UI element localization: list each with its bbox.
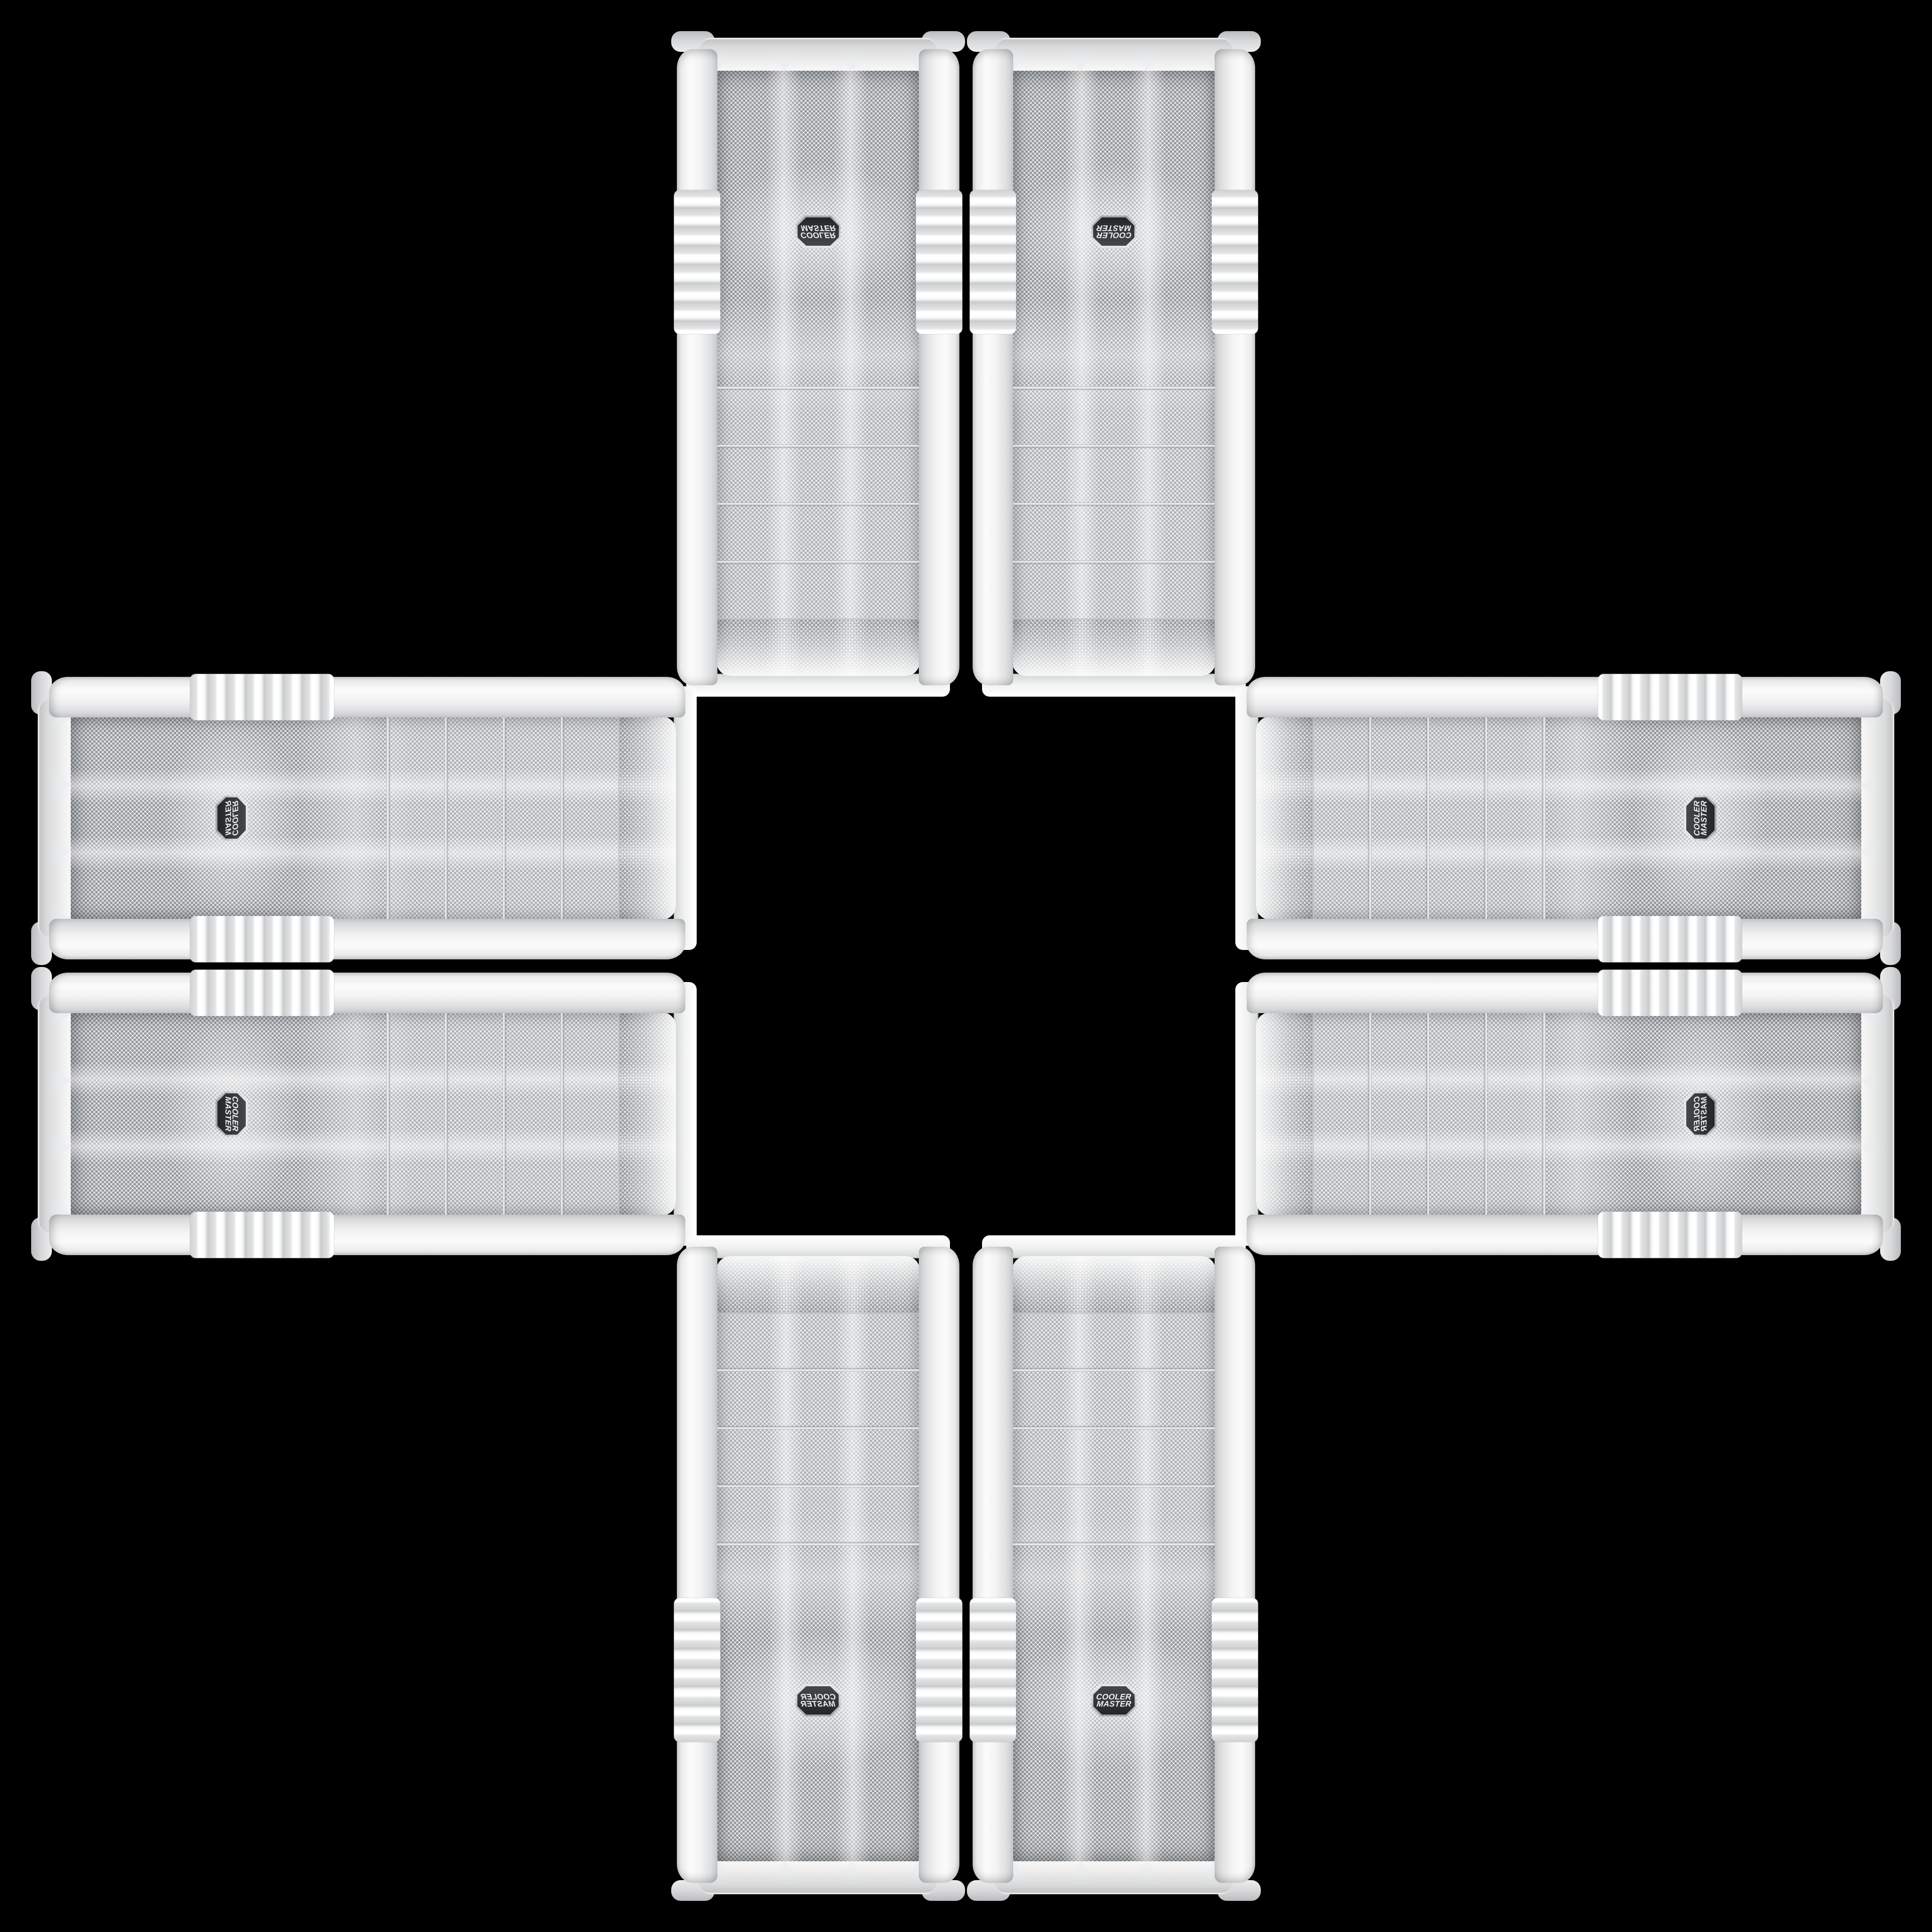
drive-bay bbox=[716, 1488, 920, 1546]
drive-bay bbox=[1430, 716, 1488, 920]
drive-bay bbox=[1012, 1430, 1216, 1488]
drive-bay bbox=[1012, 560, 1216, 618]
top-lip bbox=[982, 674, 1246, 697]
drive-bay bbox=[502, 1012, 560, 1216]
drive-bay-covers bbox=[716, 1314, 920, 1546]
badge-line1: COOLER bbox=[800, 232, 836, 239]
cooler-master-badge: COOLER MASTER bbox=[796, 216, 841, 248]
top-lip bbox=[686, 674, 950, 697]
mesh-crown bbox=[1012, 1256, 1216, 1314]
drive-bay bbox=[1012, 1372, 1216, 1430]
front-mesh-panel: COOLER MASTER bbox=[1256, 716, 1861, 920]
bezel-rail-right bbox=[919, 49, 959, 685]
top-lip bbox=[674, 982, 697, 1246]
rail-grip-ribs bbox=[191, 970, 334, 1016]
front-mesh-panel: COOLER MASTER bbox=[71, 716, 676, 920]
badge-line2: MASTER bbox=[1096, 1700, 1132, 1707]
drive-bay-covers bbox=[1012, 386, 1216, 618]
rail-grip-ribs bbox=[1598, 674, 1742, 720]
mesh-crown bbox=[618, 1012, 676, 1216]
badge-face: COOLER MASTER bbox=[1093, 217, 1135, 246]
bottom-cap bbox=[700, 1857, 937, 1894]
drive-bay-covers bbox=[1314, 1012, 1546, 1216]
rail-grip-ribs bbox=[674, 1598, 720, 1742]
bezel-rail-right bbox=[1247, 1215, 1883, 1255]
badge-face: COOLER MASTER bbox=[1093, 1686, 1135, 1715]
top-lip bbox=[1235, 982, 1258, 1246]
drive-bay bbox=[1314, 716, 1372, 920]
top-lip bbox=[686, 1235, 950, 1258]
cooler-master-badge: COOLER MASTER bbox=[1684, 1091, 1716, 1137]
bottom-cap bbox=[995, 38, 1232, 75]
pc-case-east-bottom: COOLER MASTER bbox=[1230, 971, 1895, 1257]
drive-bay bbox=[1012, 444, 1216, 502]
drive-bay bbox=[716, 560, 920, 618]
drive-bay bbox=[1372, 1012, 1430, 1216]
drive-bay bbox=[502, 716, 560, 920]
badge-face: COOLER MASTER bbox=[798, 217, 839, 246]
drive-bay bbox=[716, 1430, 920, 1488]
bezel-rail-left bbox=[49, 919, 685, 959]
drive-bay bbox=[444, 1012, 502, 1216]
bezel-rail-right bbox=[49, 1215, 685, 1255]
rail-grip-ribs bbox=[970, 1598, 1016, 1742]
cooler-master-badge: COOLER MASTER bbox=[216, 1091, 248, 1137]
pc-case-south-left: COOLER MASTER bbox=[675, 1230, 961, 1895]
cooler-master-badge: COOLER MASTER bbox=[1684, 796, 1716, 841]
bezel-rail-left bbox=[919, 1247, 959, 1883]
drive-bay bbox=[560, 1012, 618, 1216]
top-lip bbox=[674, 686, 697, 950]
badge-line2: MASTER bbox=[1700, 1096, 1707, 1132]
drive-bay bbox=[1430, 1012, 1488, 1216]
cooler-master-badge: COOLER MASTER bbox=[1091, 216, 1137, 248]
rail-grip-ribs bbox=[916, 191, 962, 334]
badge-line2: MASTER bbox=[1096, 225, 1132, 232]
badge-face: COOLER MASTER bbox=[217, 798, 246, 839]
rail-grip-ribs bbox=[916, 1598, 962, 1742]
drive-bay bbox=[716, 444, 920, 502]
bezel-rail-right bbox=[1247, 677, 1883, 717]
cooler-master-badge: COOLER MASTER bbox=[216, 796, 248, 841]
badge-face: COOLER MASTER bbox=[1686, 1093, 1715, 1135]
bottom-cap bbox=[995, 1857, 1232, 1894]
drive-bay-covers bbox=[716, 386, 920, 618]
drive-bay bbox=[716, 1314, 920, 1372]
front-mesh-panel: COOLER MASTER bbox=[1012, 1256, 1216, 1861]
drive-bay bbox=[386, 1012, 444, 1216]
mesh-crown bbox=[716, 618, 920, 676]
rail-grip-ribs bbox=[1598, 916, 1742, 962]
drive-bay bbox=[560, 716, 618, 920]
badge-line2: MASTER bbox=[225, 1096, 232, 1132]
drive-bay bbox=[386, 716, 444, 920]
bezel-rail-left bbox=[973, 1247, 1013, 1883]
mesh-crown bbox=[1256, 1012, 1314, 1216]
drive-bay bbox=[716, 1372, 920, 1430]
bottom-cap bbox=[38, 700, 75, 937]
rail-grip-ribs bbox=[191, 916, 334, 962]
rail-grip-ribs bbox=[1212, 1598, 1258, 1742]
pc-case-north-right: COOLER MASTER bbox=[971, 37, 1257, 702]
drive-bay-covers bbox=[1012, 1314, 1216, 1546]
collage-canvas: COOLER MASTER bbox=[0, 0, 1932, 1932]
bottom-cap bbox=[1857, 995, 1894, 1232]
bezel-rail-left bbox=[1247, 973, 1883, 1013]
bezel-rail-left bbox=[1215, 49, 1255, 685]
badge-face: COOLER MASTER bbox=[798, 1686, 839, 1715]
drive-bay bbox=[1488, 716, 1546, 920]
drive-bay bbox=[1314, 1012, 1372, 1216]
mesh-crown bbox=[1012, 618, 1216, 676]
bezel-rail-left bbox=[1247, 919, 1883, 959]
cooler-master-badge: COOLER MASTER bbox=[796, 1684, 841, 1716]
pc-case-north-left: COOLER MASTER bbox=[675, 37, 961, 702]
bezel-rail-right bbox=[49, 677, 685, 717]
front-mesh-panel: COOLER MASTER bbox=[716, 71, 920, 676]
rail-grip-ribs bbox=[191, 674, 334, 720]
bezel-rail-left bbox=[677, 49, 717, 685]
badge-line2: MASTER bbox=[1700, 800, 1707, 836]
badge-line1: COOLER bbox=[232, 1096, 239, 1132]
pc-case-west-bottom: COOLER MASTER bbox=[37, 971, 702, 1257]
rail-grip-ribs bbox=[1212, 191, 1258, 334]
pc-case-east-top: COOLER MASTER bbox=[1230, 675, 1895, 961]
rail-grip-ribs bbox=[674, 191, 720, 334]
drive-bay-covers bbox=[386, 716, 618, 920]
rail-grip-ribs bbox=[1598, 1212, 1742, 1258]
badge-line2: MASTER bbox=[800, 225, 836, 232]
mesh-crown bbox=[618, 716, 676, 920]
top-lip bbox=[982, 1235, 1246, 1258]
badge-face: COOLER MASTER bbox=[217, 1093, 246, 1135]
badge-face: COOLER MASTER bbox=[1686, 798, 1715, 839]
bottom-cap bbox=[38, 995, 75, 1232]
drive-bay bbox=[716, 502, 920, 560]
badge-line1: COOLER bbox=[1096, 232, 1132, 239]
rail-grip-ribs bbox=[191, 1212, 334, 1258]
rail-grip-ribs bbox=[970, 191, 1016, 334]
drive-bay bbox=[1012, 1314, 1216, 1372]
bezel-rail-right bbox=[677, 1247, 717, 1883]
front-mesh-panel: COOLER MASTER bbox=[1256, 1012, 1861, 1216]
drive-bay bbox=[716, 386, 920, 444]
front-mesh-panel: COOLER MASTER bbox=[716, 1256, 920, 1861]
drive-bay bbox=[444, 716, 502, 920]
drive-bay bbox=[1012, 386, 1216, 444]
bezel-rail-right bbox=[1215, 1247, 1255, 1883]
drive-bay-covers bbox=[1314, 716, 1546, 920]
pc-case-south-right: COOLER MASTER bbox=[971, 1230, 1257, 1895]
drive-bay bbox=[1012, 502, 1216, 560]
pc-case-west-top: COOLER MASTER bbox=[37, 675, 702, 961]
bezel-rail-right bbox=[973, 49, 1013, 685]
mesh-crown bbox=[716, 1256, 920, 1314]
top-lip bbox=[1235, 686, 1258, 950]
bottom-cap bbox=[1857, 700, 1894, 937]
drive-bay bbox=[1488, 1012, 1546, 1216]
badge-line1: COOLER bbox=[232, 800, 239, 836]
bezel-rail-left bbox=[49, 973, 685, 1013]
cooler-master-badge: COOLER MASTER bbox=[1091, 1684, 1137, 1716]
front-mesh-panel: COOLER MASTER bbox=[1012, 71, 1216, 676]
drive-bay-covers bbox=[386, 1012, 618, 1216]
drive-bay bbox=[1012, 1488, 1216, 1546]
rail-grip-ribs bbox=[1598, 970, 1742, 1016]
front-mesh-panel: COOLER MASTER bbox=[71, 1012, 676, 1216]
drive-bay bbox=[1372, 716, 1430, 920]
bottom-cap bbox=[700, 38, 937, 75]
badge-line2: MASTER bbox=[800, 1700, 836, 1707]
mesh-crown bbox=[1256, 716, 1314, 920]
badge-line2: MASTER bbox=[225, 800, 232, 836]
